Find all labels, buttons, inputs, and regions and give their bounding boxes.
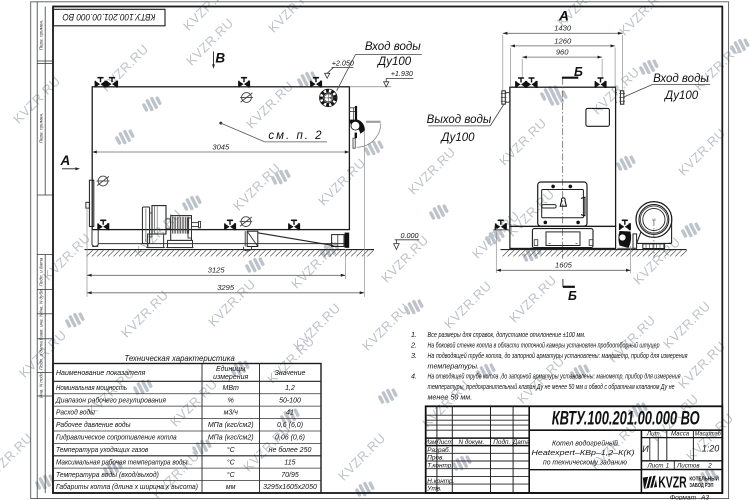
svg-text:И: И [642,444,649,454]
svg-text:70/95: 70/95 [281,472,299,479]
svg-text:Н.контр.: Н.контр. [427,478,454,485]
svg-text:Диапазон рабочего регулировани: Диапазон рабочего регулирования [55,396,166,404]
svg-text:1260: 1260 [554,36,572,45]
svg-text:На боковой стенке котла в обла: На боковой стенке котла в области топочн… [428,341,660,350]
svg-text:Масса: Масса [671,431,690,438]
svg-text:KVZR.RU: KVZR.RU [630,234,683,287]
svg-text:1605: 1605 [555,261,573,270]
svg-text:КВТУ.100.201.00.000 ВО: КВТУ.100.201.00.000 ВО [552,408,700,429]
svg-text:менее 50 мм.: менее 50 мм. [428,392,473,401]
svg-text:Гидравлическое сопротивление к: Гидравлическое сопротивление котла [56,434,177,442]
svg-text:115: 115 [284,459,295,466]
svg-text:Значение: Значение [275,370,306,377]
svg-text:Утв.: Утв. [426,486,442,493]
svg-text:KVZR.RU: KVZR.RU [315,155,368,208]
svg-text:50-100: 50-100 [279,397,301,404]
svg-text:2: 2 [707,463,712,470]
svg-text:+1.930: +1.930 [391,69,413,78]
svg-text:KVZR.RU: KVZR.RU [441,278,494,331]
svg-text:Рабочее давление воды: Рабочее давление воды [56,421,131,429]
svg-text:1:20: 1:20 [702,444,720,454]
svg-text:0,6 (6,0): 0,6 (6,0) [277,422,303,429]
svg-text:Перв. примен.: Перв. примен. [39,113,44,144]
svg-text:А: А [60,153,71,168]
svg-text:41: 41 [286,410,294,417]
svg-text:А: А [558,8,569,24]
svg-text:МВт: МВт [223,385,240,392]
svg-text:температуры.: температуры. [428,361,479,370]
svg-text:1430: 1430 [554,24,572,33]
svg-text:KVZR.RU: KVZR.RU [230,160,283,213]
svg-text:KVZR.RU: KVZR.RU [0,430,36,483]
svg-text:KVZR.RU: KVZR.RU [40,230,93,283]
svg-text:KVZR.RU: KVZR.RU [496,115,549,168]
svg-text:Перв. примен.: Перв. примен. [39,20,44,51]
svg-text:3.: 3. [411,351,417,360]
svg-text:Пров.: Пров. [427,455,444,462]
svg-text:1.: 1. [411,330,417,339]
svg-text:KVZR.RU: KVZR.RU [131,206,184,259]
svg-text:Вход воды: Вход воды [653,73,709,85]
svg-text:Лист: Лист [647,463,664,470]
svg-text:0,06 (0,6): 0,06 (0,6) [275,435,305,442]
svg-text:Техническая характеристика: Техническая характеристика [124,354,235,363]
svg-text:Ду100: Ду100 [376,56,412,68]
svg-text:Наименование показателя: Наименование показателя [56,370,146,377]
svg-text:2.: 2. [410,341,417,350]
svg-text:0.000: 0.000 [401,231,419,240]
svg-text:А3: А3 [700,494,709,500]
svg-text:В: В [215,51,225,66]
svg-text:МПа (кгс/см2): МПа (кгс/см2) [208,435,254,442]
svg-text:3295: 3295 [217,283,235,292]
svg-text:°С: °С [227,446,236,454]
svg-text:KVZR.RU: KVZR.RU [265,0,318,36]
svg-text:МПа (кгс/см2): МПа (кгс/см2) [208,422,254,429]
svg-text:Ду100: Ду100 [439,132,475,144]
svg-text:Расход воды: Расход воды [56,409,96,417]
svg-text:Максимальная рабочая температу: Максимальная рабочая температура воды [56,458,188,466]
svg-text:Котел водогрейный: Котел водогрейный [552,438,619,447]
svg-text:KVZR: KVZR [658,475,687,492]
svg-text:KVZR.RU: KVZR.RU [675,338,728,391]
svg-text:Выход воды: Выход воды [427,114,492,126]
svg-text:Все размеры для справок, допус: Все размеры для справок, допустимое откл… [428,330,586,339]
svg-text:N докум.: N докум. [458,438,484,446]
svg-text:3045: 3045 [212,142,230,151]
svg-text:КОТЕЛЬНЫЙ: КОТЕЛЬНЫЙ [689,475,719,483]
svg-text:3295х1605х2050: 3295х1605х2050 [263,484,317,491]
svg-text:Инв. N дубл.: Инв. N дубл. [39,288,44,315]
svg-text:КВТУ.100.201.00.000 ВО: КВТУ.100.201.00.000 ВО [62,12,155,22]
svg-text:Вход воды: Вход воды [365,41,421,53]
svg-text:Heatexpert–КВр–1,2–К(К): Heatexpert–КВр–1,2–К(К) [532,448,636,457]
svg-text:KVZR.RU: KVZR.RU [675,125,728,178]
svg-text:KVZR.RU: KVZR.RU [243,78,296,131]
svg-text:Б: Б [568,289,577,303]
svg-text:4.: 4. [411,372,417,381]
svg-text:Подп. и дата: Подп. и дата [39,257,44,286]
svg-text:KVZR.RU: KVZR.RU [405,144,458,197]
svg-text:960: 960 [556,48,569,57]
svg-text:Взам. инв. N: Взам. инв. N [39,313,44,340]
svg-text:Листов: Листов [676,463,700,470]
svg-text:1,2: 1,2 [285,385,295,392]
svg-text:Номинальная мощность: Номинальная мощность [56,384,127,392]
svg-text:температуры, предохранительный: температуры, предохранительный клапан Ду… [428,382,675,391]
svg-text:Инв. N подл.: Инв. N подл. [39,371,44,398]
svg-text:KVZR.RU: KVZR.RU [335,430,388,483]
svg-text:1: 1 [666,463,669,470]
svg-text:Температура воды (вход/выход): Температура воды (вход/выход) [56,471,159,479]
svg-text:+2.050: +2.050 [332,58,354,67]
svg-text:ЗАВОД РЭП: ЗАВОД РЭП [689,483,713,489]
svg-text:по техническому заданию: по техническому заданию [543,458,627,467]
svg-text:KVZR.RU: KVZR.RU [506,272,559,325]
svg-text:м3/ч: м3/ч [224,410,239,417]
svg-text:не более 250: не более 250 [269,446,312,454]
svg-text:Подп.: Подп. [493,438,510,446]
svg-text:На подводящей трубе котла, д: На подводящей трубе котла, до запорной а… [428,351,688,360]
svg-text:Разраб.: Разраб. [427,446,450,454]
svg-text:Дата: Дата [512,439,530,446]
svg-text:Лист: Лист [435,439,453,446]
svg-text:Формат: Формат [670,494,697,500]
svg-text:°С: °С [227,458,236,466]
svg-text:Т.контр.: Т.контр. [427,462,453,469]
svg-text:%: % [228,397,234,404]
svg-text:измерения: измерения [213,374,248,381]
svg-text:Температура уходящих газов: Температура уходящих газов [56,446,149,454]
svg-text:Габариты котла (длина х ширина: Габариты котла (длина х ширина х высота) [56,483,198,491]
svg-text:Единицы: Единицы [216,365,246,373]
svg-text:°С: °С [227,471,236,479]
svg-text:Подп. и дата: Подп. и дата [39,341,44,370]
svg-text:На отводящей трубе котла ,до з: На отводящей трубе котла ,до запорной ар… [428,372,681,381]
svg-text:Масштаб: Масштаб [695,431,721,438]
svg-text:см. п. 2: см. п. 2 [268,130,323,142]
svg-text:Ду100: Ду100 [663,90,699,102]
svg-text:3125: 3125 [208,266,226,275]
svg-text:Лит.: Лит. [646,431,662,438]
svg-text:KVZR.RU: KVZR.RU [118,287,171,340]
svg-text:KVZR.RU: KVZR.RU [660,298,713,351]
svg-text:мм: мм [226,484,236,491]
